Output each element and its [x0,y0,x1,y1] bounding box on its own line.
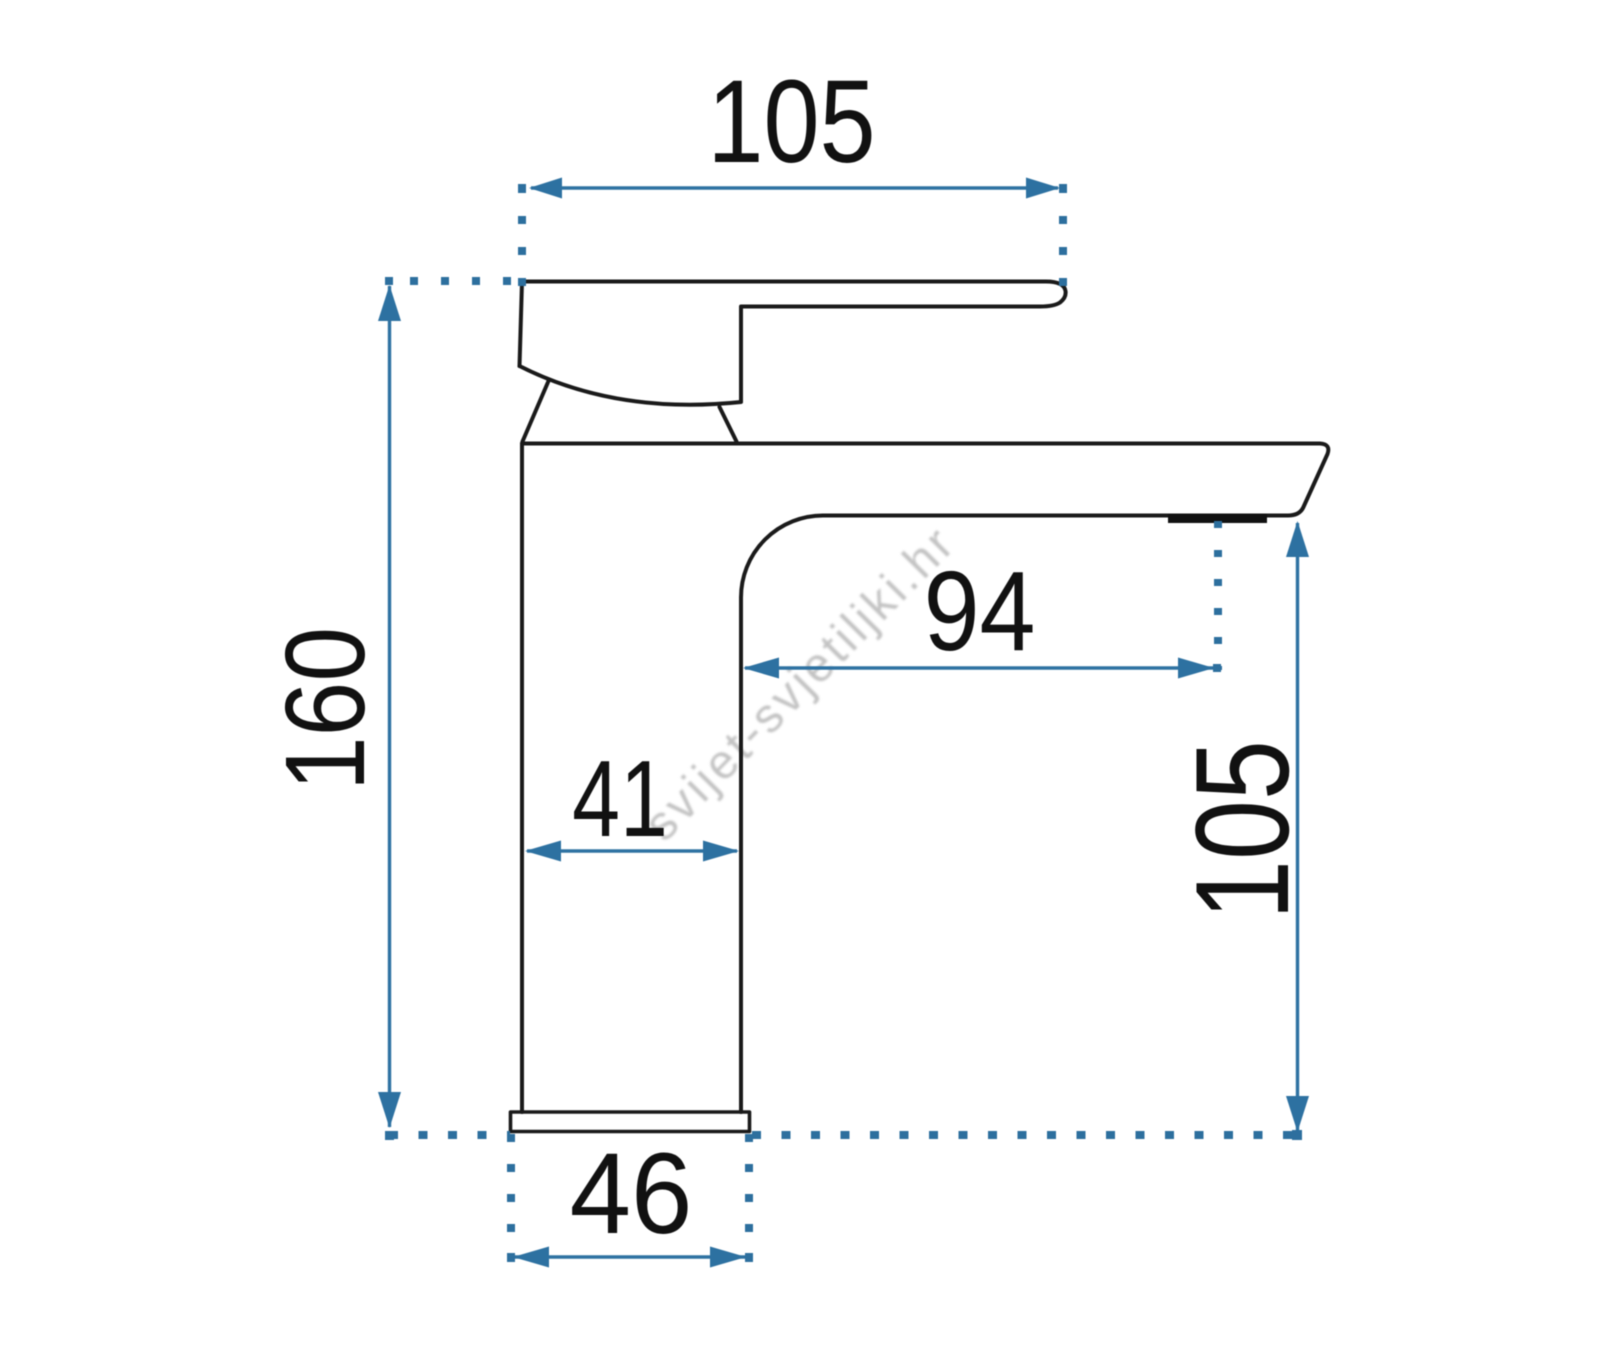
svg-text:105: 105 [1167,740,1316,920]
svg-text:41: 41 [572,737,668,859]
svg-text:105: 105 [707,57,875,188]
svg-text:svijet-svjetiljki.hr: svijet-svjetiljki.hr [634,516,966,851]
svg-text:94: 94 [924,548,1036,675]
svg-text:46: 46 [570,1129,693,1258]
svg-text:160: 160 [263,627,389,791]
